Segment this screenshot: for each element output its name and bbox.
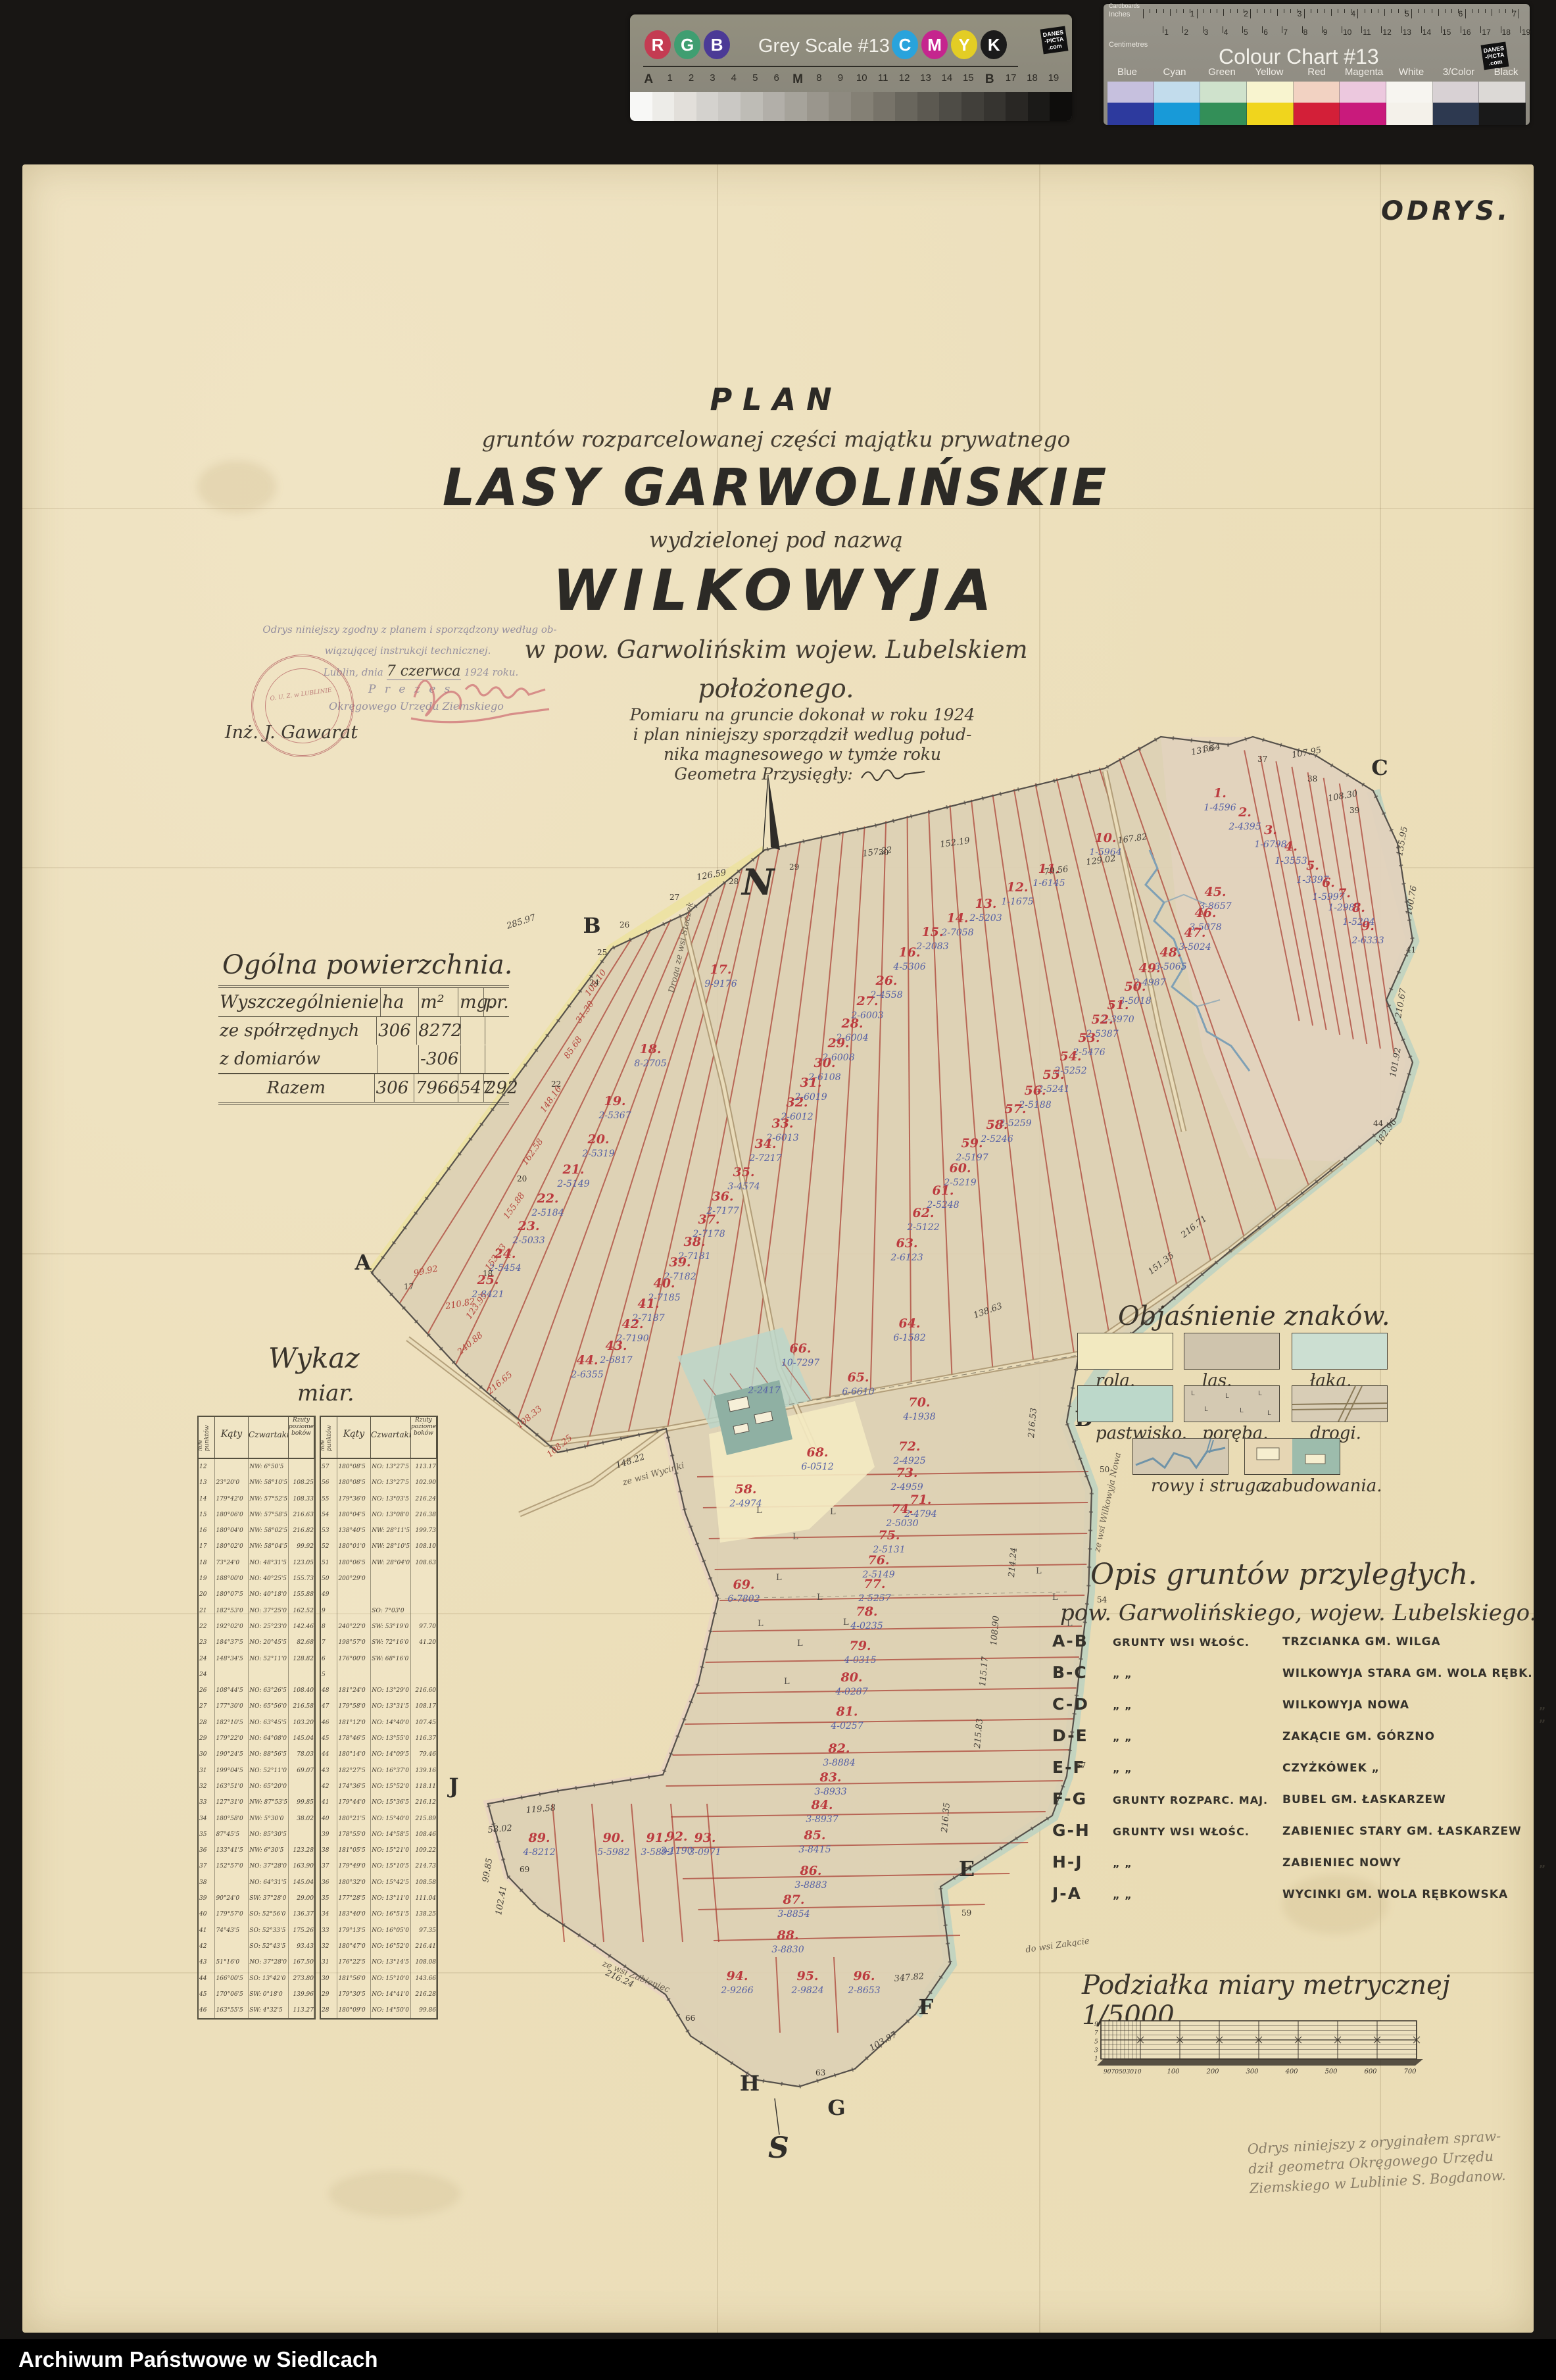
measure-table-cell xyxy=(411,1571,437,1587)
measure-table-cell: 181°12'0 xyxy=(337,1715,371,1731)
parcel-area: 9-9176 xyxy=(704,979,737,989)
measure-table-header: №№ punktów xyxy=(321,1417,337,1458)
adjacent-row: A-BGRUNTY WSI WŁOŚC.TRZCIANKA GM. WILGA xyxy=(1052,1631,1552,1654)
estate-name: LASY GARWOLIŃSKIE xyxy=(408,459,1144,518)
parcel-area: 4-0257 xyxy=(830,1721,863,1731)
poreba-mark: L xyxy=(784,1677,790,1687)
parcel-number: 41. xyxy=(637,1297,659,1311)
wykaz-subtitle: miar. xyxy=(297,1380,354,1406)
area-table-cell xyxy=(485,1017,509,1045)
parcel-number: 16. xyxy=(898,945,920,960)
measure-table-cell: 180°07'5 xyxy=(215,1587,249,1602)
boundary-letter-J: J xyxy=(447,1773,458,1798)
adjacent-cell: C-D xyxy=(1052,1695,1089,1714)
measure-table-cell: 102.90 xyxy=(411,1475,437,1491)
parcel-number: 88. xyxy=(776,1928,798,1943)
parcel-number: 96. xyxy=(853,1969,875,1983)
adjacent-cell: G-H xyxy=(1052,1821,1090,1840)
poreba-mark: L xyxy=(1036,1566,1042,1576)
measure-table-cell: SW: 4°32'5 xyxy=(249,2002,289,2018)
legend-swatch-zabudowania xyxy=(1244,1438,1340,1475)
boundary-point-number: 25 xyxy=(597,948,607,957)
measure-table-cell: 180°06'5 xyxy=(337,1555,371,1571)
adjacent-cell: WILKOWYJA NOWA xyxy=(1282,1698,1409,1712)
compass-south-line xyxy=(775,2098,779,2135)
parcel-number: 42. xyxy=(621,1317,643,1331)
parcel-number: 54. xyxy=(1059,1049,1081,1064)
measure-table-cell: 51 xyxy=(321,1555,337,1571)
measure-table-cell: 136.37 xyxy=(289,1906,314,1922)
parcel-area: 2-2083 xyxy=(915,941,948,952)
measure-table-cell xyxy=(289,1459,314,1475)
parcel-area: 2-2417 xyxy=(747,1385,780,1396)
parcel-number: 47. xyxy=(1184,926,1205,940)
measure-table-cell: 108.33 xyxy=(289,1491,314,1507)
scale-minor-number: 70 xyxy=(1111,2069,1119,2075)
measure-table-cell: 179°57'0 xyxy=(215,1906,249,1922)
parcel-number: 49. xyxy=(1138,961,1160,976)
measure-table-cell: 24 xyxy=(199,1651,215,1667)
adjacent-cell: A-B xyxy=(1052,1631,1088,1650)
measure-table-cell: 176°22'5 xyxy=(337,1954,371,1970)
parcel-area: 2-6333 xyxy=(1351,935,1384,946)
parcel-area: 2-5257 xyxy=(858,1593,890,1604)
measure-table-cell: 9 xyxy=(321,1603,337,1619)
measure-table-cell: 199°04'5 xyxy=(215,1763,249,1779)
measure-table-cell: NO: 52°11'0 xyxy=(249,1651,289,1667)
boundary-point-number: 66 xyxy=(685,2014,695,2023)
parcel-area: 6-6610 xyxy=(842,1387,874,1397)
measure-table-cell: NO: 16°51'5 xyxy=(371,1906,411,1922)
measure-table-cell: 200°29'0 xyxy=(337,1571,371,1587)
parcel-area: 2-8653 xyxy=(847,1985,880,1996)
parcel-number: 93. xyxy=(694,1831,716,1845)
measure-table-cell: 38.02 xyxy=(289,1811,314,1827)
parcel-number: 15. xyxy=(921,925,943,939)
measure-table-cell: NO: 15°10'5 xyxy=(371,1858,411,1874)
measure-table-cell xyxy=(371,1667,411,1683)
adjacent-cell: E-F xyxy=(1052,1758,1086,1777)
measure-table-cell: 179°22'0 xyxy=(215,1731,249,1747)
measure-table-cell: 216.28 xyxy=(411,1987,437,2002)
measure-table-cell: 47 xyxy=(321,1698,337,1714)
poreba-mark: L xyxy=(843,1618,849,1627)
measure-table-cell: 118.11 xyxy=(411,1779,437,1795)
scale-left-number: 3 xyxy=(1094,2048,1098,2054)
area-table-cell xyxy=(485,1045,509,1073)
measure-table-cell: 56 xyxy=(321,1475,337,1491)
measure-table-cell: 188°00'0 xyxy=(215,1571,249,1587)
adjacent-cell: „ „ xyxy=(1113,1668,1284,1680)
measure-table-cell: 152°57'0 xyxy=(215,1858,249,1874)
boundary-point-number: 28 xyxy=(729,877,739,886)
area-table-cell: 7966 xyxy=(414,1074,458,1102)
measure-table-cell: SW: 37°28'0 xyxy=(249,1891,289,1906)
parcel-number: 92. xyxy=(666,1829,687,1844)
parcel-number: 85. xyxy=(803,1828,825,1843)
parcel-number: 52. xyxy=(1091,1012,1113,1027)
measure-table-cell: 113.17 xyxy=(411,1459,437,1475)
measure-table-cell: 179°44'0 xyxy=(337,1795,371,1810)
measure-table-cell: 108°44'5 xyxy=(215,1683,249,1698)
parcel-area: 2-6123 xyxy=(890,1252,923,1263)
measure-table-cell: 14 xyxy=(199,1491,215,1507)
parcel-area: 3-8937 xyxy=(806,1814,838,1825)
edge-measure: 135.95 xyxy=(1395,826,1410,856)
measure-table-cell: 163.90 xyxy=(289,1858,314,1874)
measure-table-cell: NO: 14°41'0 xyxy=(371,1987,411,2002)
parcel-area: 5-5982 xyxy=(597,1847,629,1858)
legend-swatch-las xyxy=(1184,1333,1280,1370)
measure-table-cell: 182°27'5 xyxy=(337,1763,371,1779)
parcel-number: 46. xyxy=(1194,906,1216,920)
parcel-number: 81. xyxy=(835,1704,858,1719)
boundary-point-number: 29 xyxy=(789,862,799,872)
measure-table-cell: 170°06'5 xyxy=(215,1987,249,2002)
boundary-point-number: 36 xyxy=(1203,744,1213,753)
measure-table-cell: 181°05'5 xyxy=(337,1843,371,1858)
measure-table-cell: 174°36'5 xyxy=(337,1779,371,1795)
edge-measure: 100.76 xyxy=(1404,885,1419,916)
measure-table-cell: NO: 65°56'0 xyxy=(249,1698,289,1714)
adjacent-cell: „ „ xyxy=(1113,1762,1284,1775)
parcel-name: WILKOWYJA xyxy=(408,558,1144,624)
measure-table-cell: 99.92 xyxy=(289,1539,314,1554)
measure-table-cell: 49 xyxy=(321,1587,337,1602)
measure-table-cell: NO: 20°45'5 xyxy=(249,1635,289,1650)
parcel-number: 48. xyxy=(1159,945,1181,960)
measure-table-cell: 123.05 xyxy=(289,1555,314,1571)
measure-table-cell xyxy=(215,1667,249,1683)
measure-table-cell: 51°16'0 xyxy=(215,1954,249,1970)
measure-table-cell: 273.80 xyxy=(289,1971,314,1987)
measure-table-cell: 180°04'5 xyxy=(337,1507,371,1523)
measure-table-cell: 216.38 xyxy=(411,1507,437,1523)
parcel-number: 38. xyxy=(683,1235,705,1249)
parcel-number: 27. xyxy=(856,994,878,1008)
measure-table-cell: 148°34'5 xyxy=(215,1651,249,1667)
parcel-number: 30. xyxy=(814,1056,835,1070)
boundary-letter-B: B xyxy=(583,913,600,938)
parcel-number: 2. xyxy=(1238,805,1252,820)
legend-title: Objaśnienie znaków. xyxy=(1118,1301,1390,1331)
parcel-area: 2-5030 xyxy=(885,1518,918,1529)
scale-major-number: 300 xyxy=(1246,2068,1259,2075)
measure-table-cell: 48 xyxy=(321,1683,337,1698)
parcel-number: 78. xyxy=(856,1604,877,1619)
measure-table-cell: 127°31'0 xyxy=(215,1795,249,1810)
measure-table-cell: 52 xyxy=(321,1539,337,1554)
measure-table-cell: 113.27 xyxy=(289,2002,314,2018)
measure-table-cell: 37 xyxy=(199,1858,215,1874)
parcel-number: 36. xyxy=(712,1189,733,1204)
scale-minor-number: 10 xyxy=(1134,2069,1142,2075)
adjacent-row: C-D„ „WILKOWYJA NOWA„ „ xyxy=(1052,1695,1552,1717)
measure-table-cell: NO: 16°52'0 xyxy=(371,1939,411,1954)
adjacent-cell: BUBEL GM. ŁASKARZEW xyxy=(1282,1793,1446,1806)
measure-table-cell: 145.04 xyxy=(289,1731,314,1747)
measure-table-cell: 111.04 xyxy=(411,1891,437,1906)
measure-table-cell xyxy=(411,1587,437,1602)
scale-major-number: 200 xyxy=(1205,2068,1219,2075)
measure-table-cell: 18 xyxy=(199,1555,215,1571)
measure-table-cell: 45 xyxy=(321,1731,337,1747)
parcel-number: 72. xyxy=(898,1439,920,1454)
measure-table-cell: NO: 13°14'5 xyxy=(371,1954,411,1970)
parcel-number: 43. xyxy=(605,1339,627,1353)
measure-table-cell: 55 xyxy=(321,1491,337,1507)
measure-table-cell: NW: 57°58'5 xyxy=(249,1507,289,1523)
surveyor-note-line: Geometra Przysięgły: xyxy=(618,764,986,785)
measure-table-cell: 109.22 xyxy=(411,1843,437,1858)
parcel-area: 10-7297 xyxy=(781,1358,819,1368)
parcel-number: 3. xyxy=(1264,823,1277,837)
parcel-area: 3-8933 xyxy=(814,1787,846,1797)
measure-table-cell: 155.88 xyxy=(289,1587,314,1602)
parcel-area: 3-8854 xyxy=(777,1909,810,1920)
measure-table-cell: 192°02'0 xyxy=(215,1619,249,1635)
boundary-letter-G: G xyxy=(827,2095,845,2120)
measure-table-cell: 142.46 xyxy=(289,1619,314,1635)
measure-table-cell: 19 xyxy=(199,1571,215,1587)
parcel-number: 66. xyxy=(789,1341,811,1356)
legend-swatch-poreba: LLLLLL xyxy=(1184,1385,1280,1422)
measure-table-cell: 29.00 xyxy=(289,1891,314,1906)
measure-table-cell: 69.07 xyxy=(289,1763,314,1779)
measure-table-cell: NO: 14°40'0 xyxy=(371,1715,411,1731)
measure-table-cell: 23 xyxy=(199,1635,215,1650)
boundary-point-number: 44 xyxy=(1373,1119,1384,1128)
parcel-area: 3-8415 xyxy=(798,1845,831,1855)
boundary-point-number: 59 xyxy=(961,1908,971,1918)
parcel-number: 56. xyxy=(1024,1083,1046,1098)
parcel-number: 8. xyxy=(1351,901,1365,915)
poreba-mark: L xyxy=(817,1593,823,1602)
measure-table-cell: 180°08'5 xyxy=(337,1475,371,1491)
parcel-area: 4-8212 xyxy=(522,1847,555,1858)
odrys-annotation: ODRYS. xyxy=(1381,196,1511,226)
legend-swatch-pastwisko xyxy=(1077,1385,1173,1422)
poreba-mark: L xyxy=(776,1573,782,1583)
measure-table-cell: NO: 13°55'0 xyxy=(371,1731,411,1747)
measure-table-cell: 41 xyxy=(199,1923,215,1939)
adjacent-cell: ZABIENIEC STARY GM. ŁASKARZEW xyxy=(1282,1825,1522,1838)
parcel-number: 75. xyxy=(878,1528,900,1543)
parcel-number: 1. xyxy=(1213,786,1227,801)
boundary-point-number: 26 xyxy=(620,920,629,930)
measure-table-cell: NW: 58°02'5 xyxy=(249,1523,289,1539)
measure-table-cell: NW: 87°53'5 xyxy=(249,1795,289,1810)
parcel-number: 32. xyxy=(786,1095,808,1110)
measure-table-cell: NO: 13°31'5 xyxy=(371,1698,411,1714)
scale-left-number: 5 xyxy=(1094,2039,1098,2045)
parcel-area: 8-2705 xyxy=(634,1058,666,1069)
measure-table-cell: NO: 14°09'5 xyxy=(371,1747,411,1762)
measure-table-cell: 39 xyxy=(321,1827,337,1843)
adjacent-cell: WILKOWYJA STARA GM. WOLA RĘBK. xyxy=(1282,1667,1533,1680)
measure-table-header: Kąty xyxy=(215,1417,249,1458)
measure-table-cell: 6 xyxy=(321,1651,337,1667)
adjacent-row: G-HGRUNTY WSI WŁOŚC.ZABIENIEC STARY GM. … xyxy=(1052,1821,1552,1843)
boundary-letter-H: H xyxy=(740,2071,760,2096)
measure-table-cell: 178°46'5 xyxy=(337,1731,371,1747)
boundary-letter-C: C xyxy=(1371,755,1388,780)
surveyor-signature-icon xyxy=(858,765,931,785)
measure-table-cell: 46 xyxy=(199,2002,215,2018)
measure-table-cell: 180°14'0 xyxy=(337,1747,371,1762)
measure-table-cell: SW: 68°16'0 xyxy=(371,1651,411,1667)
measure-table-cell xyxy=(215,1939,249,1954)
measure-table-cell: 44 xyxy=(199,1971,215,1987)
scale-minor-number: 50 xyxy=(1119,2069,1127,2075)
measure-table-cell: 99.86 xyxy=(411,2002,437,2018)
parcel-area: 4-0235 xyxy=(850,1621,883,1631)
measure-table-cell: 27 xyxy=(199,1698,215,1714)
measure-table-cell: 17 xyxy=(199,1539,215,1554)
boundary-point-number: 30 xyxy=(879,848,888,857)
parcel-number: 89. xyxy=(527,1831,550,1845)
measure-table-cell xyxy=(337,1587,371,1602)
parcel-area: 2-4959 xyxy=(890,1482,923,1493)
measure-table-cell: 43 xyxy=(321,1763,337,1779)
measure-table-cell: 93.43 xyxy=(289,1939,314,1954)
road-name: do wsi Zakącie xyxy=(1025,1936,1090,1955)
measure-table-cell: 97.70 xyxy=(411,1619,437,1635)
measure-table-cell: 82.68 xyxy=(289,1635,314,1650)
parcel-number: 14. xyxy=(946,911,968,926)
parcel-number: 53. xyxy=(1078,1031,1100,1045)
edge-measure: 102.41 xyxy=(494,1885,509,1916)
adjacent-cell: GRUNTY WSI WŁOŚC. xyxy=(1113,1636,1284,1649)
parcel-area: 2-5033 xyxy=(512,1235,545,1246)
area-table-cell: 306 xyxy=(376,1017,416,1045)
adjacent-cell: J-A xyxy=(1052,1884,1082,1903)
area-table-cell: 8272 xyxy=(416,1017,460,1045)
measure-table-cell: 20 xyxy=(199,1587,215,1602)
measure-table-cell: 182°10'5 xyxy=(215,1715,249,1731)
parcel-number: 57. xyxy=(1004,1102,1026,1116)
measure-table-cell: SO: 52°56'0 xyxy=(249,1906,289,1922)
adjacent-cell: GRUNTY WSI WŁOŚC. xyxy=(1113,1825,1284,1838)
measure-table-cell: 216.58 xyxy=(289,1698,314,1714)
area-table-cell: 306 xyxy=(374,1074,414,1102)
measure-table-cell: NW: 28°10'5 xyxy=(371,1539,411,1554)
measure-table-cell: 179°42'0 xyxy=(215,1491,249,1507)
measure-table-left: №№ punktówKątyCzwartakiRzuty poziome bok… xyxy=(197,1416,316,2020)
area-table-cell xyxy=(377,1045,418,1073)
measure-table-cell: 24 xyxy=(199,1667,215,1683)
measure-table-cell: 190°24'5 xyxy=(215,1747,249,1762)
parcel-number: 13. xyxy=(975,897,996,911)
measure-table-cell: 31 xyxy=(321,1954,337,1970)
parcel-number: 90. xyxy=(602,1831,624,1845)
parcel-area: 3-5024 xyxy=(1179,942,1211,953)
adjacent-cell: CZYŻKÓWEK „ xyxy=(1282,1762,1380,1775)
measure-table-cell xyxy=(337,1667,371,1683)
measure-table-cell xyxy=(371,1587,411,1602)
measure-table-cell: SW: 72°16'0 xyxy=(371,1635,411,1650)
parcel-area: 1-3553 xyxy=(1275,856,1307,866)
plan-heading: PLAN xyxy=(408,382,1144,417)
measure-table-cell xyxy=(411,1667,437,1683)
measure-table-cell: 5 xyxy=(321,1667,337,1683)
poreba-mark: L xyxy=(1052,1593,1058,1602)
measure-table-cell: 214.73 xyxy=(411,1858,437,1874)
measure-table-cell: NO: 15°21'0 xyxy=(371,1843,411,1858)
measure-table-cell: 139.16 xyxy=(411,1763,437,1779)
measure-table-cell: 108.08 xyxy=(411,1954,437,1970)
measure-table-cell: SO: 7°03'0 xyxy=(371,1603,411,1619)
area-table-cell: 292 xyxy=(483,1074,509,1102)
scale-minor-number: 90 xyxy=(1104,2069,1111,2075)
parcel-number: 70. xyxy=(908,1395,930,1410)
surveyor-note-line: nika magnesowego w tymże roku xyxy=(618,745,986,764)
scale-major-number: 600 xyxy=(1364,2068,1377,2075)
adjacent-cell: „ „ xyxy=(1113,1731,1284,1743)
parcel-number: 50. xyxy=(1124,979,1146,994)
adjacent-cell: GRUNTY ROZPARC. MAJ. xyxy=(1113,1794,1284,1806)
measure-table-cell: NO: 64°08'0 xyxy=(249,1731,289,1747)
measure-table-cell: 215.89 xyxy=(411,1811,437,1827)
measure-table-cell: 177°28'5 xyxy=(337,1891,371,1906)
measure-table-cell: 7 xyxy=(321,1635,337,1650)
adjacent-cell: F-G xyxy=(1052,1789,1087,1808)
parcel-area: 1-1675 xyxy=(1001,897,1033,907)
area-table-cell: Wyszczególnienie xyxy=(218,988,380,1016)
measure-table-cell: NO: 40°18'0 xyxy=(249,1587,289,1602)
parcel-area: 3-8830 xyxy=(771,1945,804,1955)
parcel-number: 62. xyxy=(912,1206,934,1220)
parcel-number: 22. xyxy=(536,1191,558,1206)
measure-table-cell: 22 xyxy=(199,1619,215,1635)
boundary-point-number: 38 xyxy=(1307,774,1317,783)
measure-table-cell: 139.96 xyxy=(289,1987,314,2002)
measure-table-cell: NO: 40°25'5 xyxy=(249,1571,289,1587)
surveyor-note: Pomiaru na gruncie dokonał w roku 1924 i… xyxy=(618,705,986,785)
parcel-area: 2-7058 xyxy=(940,928,973,938)
parcel-area: 2-9824 xyxy=(790,1985,823,1996)
measure-table-cell: 33 xyxy=(199,1795,215,1810)
measure-table-cell xyxy=(289,1827,314,1843)
measure-table-cell: NO: 13°27'5 xyxy=(371,1475,411,1491)
area-table-cell: ze spółrzędnych xyxy=(218,1017,376,1045)
measure-table-cell: 28 xyxy=(199,1715,215,1731)
measure-table-cell: 180°04'0 xyxy=(215,1523,249,1539)
measure-table-cell: NW: 28°11'5 xyxy=(371,1523,411,1539)
parcel-number: 63. xyxy=(896,1236,917,1251)
measure-table-cell: 13 xyxy=(199,1475,215,1491)
parcel-area: 2-9266 xyxy=(720,1985,753,1996)
parcel-number: 7. xyxy=(1338,886,1351,901)
measure-table-cell: 45 xyxy=(199,1987,215,2002)
parcel-number: 19. xyxy=(604,1094,625,1108)
area-table-cell xyxy=(460,1045,485,1073)
measure-table-cell: 181°24'0 xyxy=(337,1683,371,1698)
parcel-area: 3-1190 xyxy=(660,1846,693,1856)
measure-table-cell: 199.73 xyxy=(411,1523,437,1539)
measure-table-cell: NW: 6°30'5 xyxy=(249,1843,289,1858)
measure-table-cell: NO: 63°45'5 xyxy=(249,1715,289,1731)
parcel-number: 58. xyxy=(735,1482,756,1497)
parcel-area: 2-5184 xyxy=(531,1208,564,1218)
area-table-cell: Razem xyxy=(218,1074,374,1102)
adjacent-subtitle: pow. Garwolińskiego, wojew. Lubelskiego. xyxy=(1060,1600,1536,1626)
parcel-area: 1-6798 xyxy=(1254,839,1286,850)
measure-table-cell: 240°22'0 xyxy=(337,1619,371,1635)
measure-table-cell: 79.46 xyxy=(411,1747,437,1762)
parcel-area: 4-0315 xyxy=(843,1655,876,1666)
measure-table-cell: 138°40'5 xyxy=(337,1523,371,1539)
